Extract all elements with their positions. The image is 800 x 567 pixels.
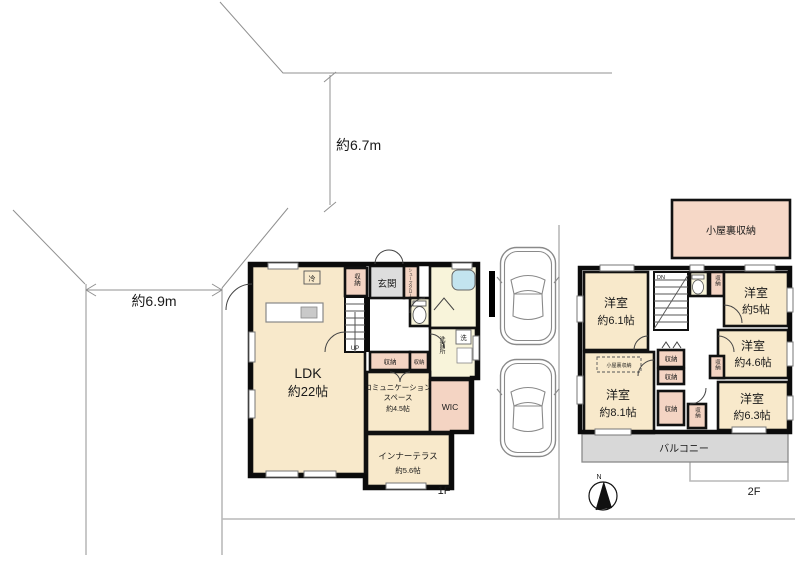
floor2-plan: DN 洋室 約6.1帖 洋室 約5帖 洋室 約4.6帖 洋室 約8.1帖 洋室 …: [577, 265, 793, 498]
label-closet-2f-top: 収納: [714, 275, 721, 288]
label-balcony: バルコニー: [659, 443, 709, 455]
label-closet-c2: 収納: [665, 372, 678, 381]
room-communication: [367, 372, 430, 432]
label-room81-size: 約8.1帖: [599, 405, 636, 419]
attic-storage-box: 小屋裏収納: [672, 200, 790, 258]
label-wash-mark: 洗: [460, 333, 467, 342]
label-floor2: 2F: [748, 486, 761, 498]
label-attic-storage: 小屋裏収納: [706, 224, 756, 237]
toilet-icon-1f: [413, 301, 426, 324]
label-ldk: LDK: [294, 365, 322, 381]
label-fridge: 冷: [309, 274, 316, 283]
room-6-1: [584, 272, 648, 350]
label-closet-2f-mid: 収納: [714, 359, 721, 372]
label-terrace-size: 約5.6帖: [395, 465, 421, 475]
label-room5: 洋室: [744, 285, 768, 300]
label-room46-size: 約4.6帖: [734, 355, 771, 369]
label-wic: WIC: [442, 402, 459, 412]
label-comm-3: 約4.5帖: [386, 404, 410, 413]
stairs-up: [345, 297, 370, 352]
kitchen-counter: [266, 303, 323, 322]
label-room5-size: 約5帖: [742, 302, 770, 316]
label-ldk-size: 約22帖: [288, 384, 328, 399]
label-room61: 洋室: [604, 295, 628, 310]
car-icon: [497, 248, 559, 345]
label-north: N: [596, 474, 601, 481]
label-room63-size: 約6.3帖: [733, 408, 770, 422]
label-shoes-closet: シューズクローク: [409, 268, 414, 302]
label-closet-c3: 収納: [665, 404, 678, 413]
label-comm-2: スペース: [383, 393, 412, 402]
label-dn: DN: [657, 275, 665, 281]
floor1-plan: LDK 約22帖 冷 収納 UP 玄関 シューズクローク 洗 洗面所 収納 収納…: [226, 250, 479, 497]
compass-icon: N: [589, 474, 617, 510]
toilet-icon-2f: [692, 275, 704, 294]
label-closet-c1: 収納: [665, 354, 678, 363]
label-floor1: 1F: [438, 485, 451, 497]
label-room46: 洋室: [741, 338, 765, 353]
floorplan-page: 約6.7m 約6.9m: [0, 0, 800, 567]
bathtub-icon: [452, 270, 475, 290]
floorplan-drawing: 約6.7m 約6.9m: [0, 0, 800, 567]
label-room81: 洋室: [606, 387, 630, 402]
label-washroom: 洗面所: [438, 335, 445, 355]
car-icon: [497, 360, 559, 457]
gate-wall: [489, 271, 495, 317]
label-comm-1: コミュニケーション: [364, 383, 431, 392]
label-room63: 洋室: [740, 391, 764, 406]
dimension-left: 約6.9m: [131, 293, 176, 309]
label-room61-size: 約6.1帖: [597, 313, 634, 327]
label-closet-c4: 収納: [694, 407, 701, 420]
label-genkan: 玄関: [377, 278, 396, 290]
label-terrace: インナーテラス: [378, 451, 437, 461]
dimension-top: 約6.7m: [336, 137, 381, 153]
room-4-6: [718, 330, 788, 378]
label-closet-a: 収納: [384, 357, 397, 366]
room-6-3: [718, 382, 788, 430]
label-up: UP: [351, 346, 359, 352]
label-closet-b: 収納: [413, 358, 425, 366]
label-attic-access: 小屋裏収納: [606, 362, 631, 369]
